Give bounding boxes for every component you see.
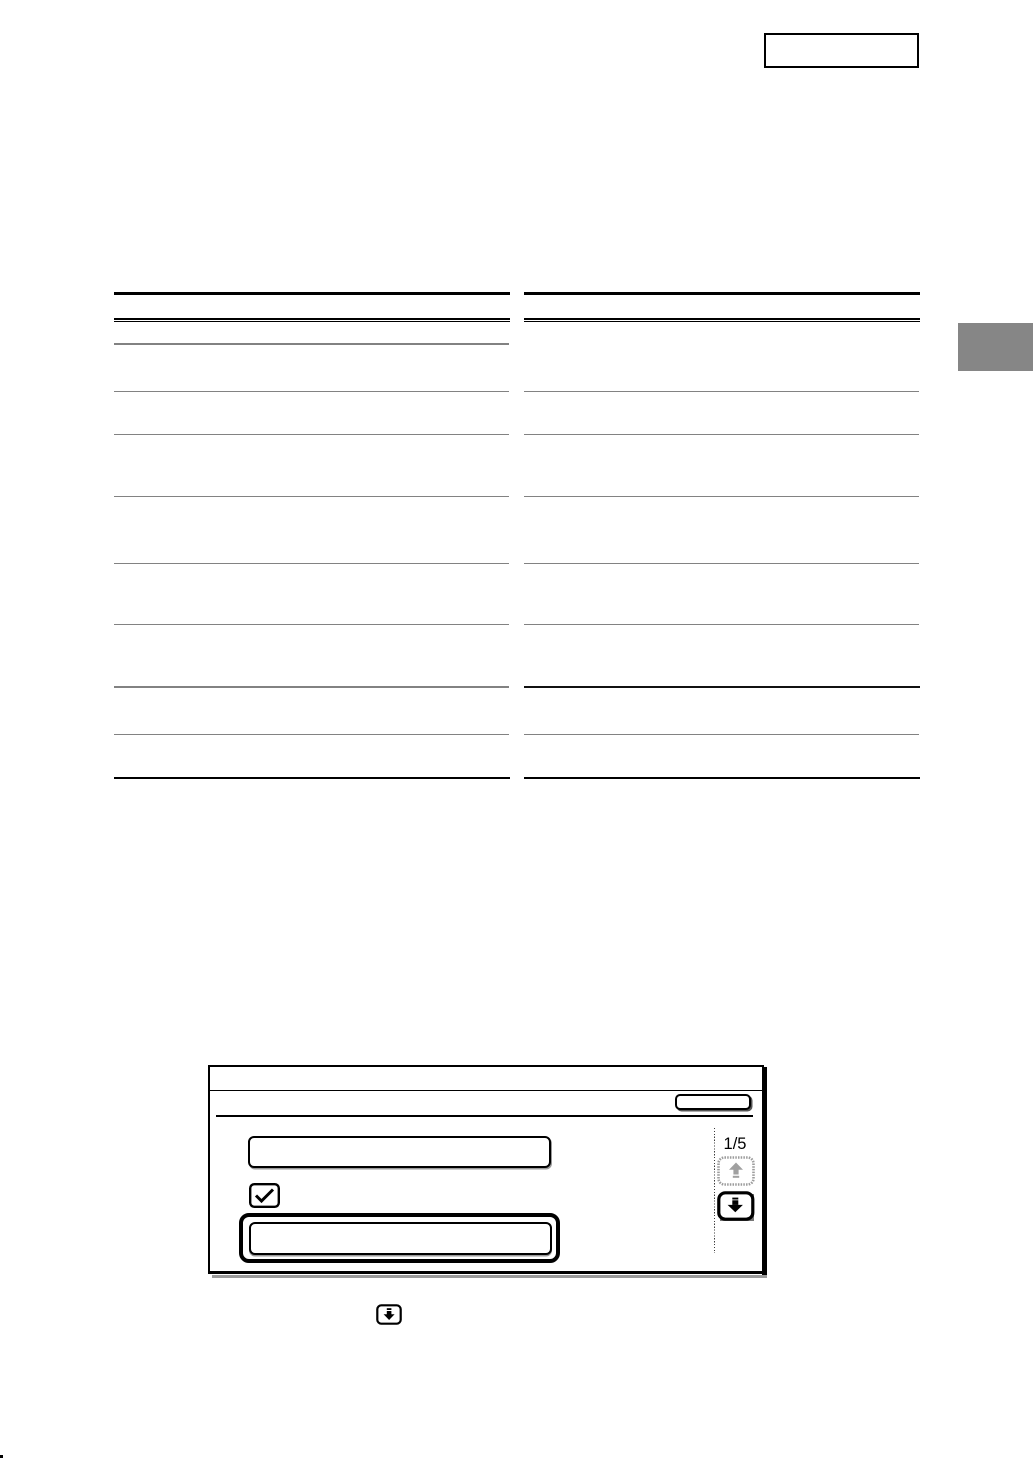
svg-text:1/5: 1/5 bbox=[724, 1135, 747, 1153]
